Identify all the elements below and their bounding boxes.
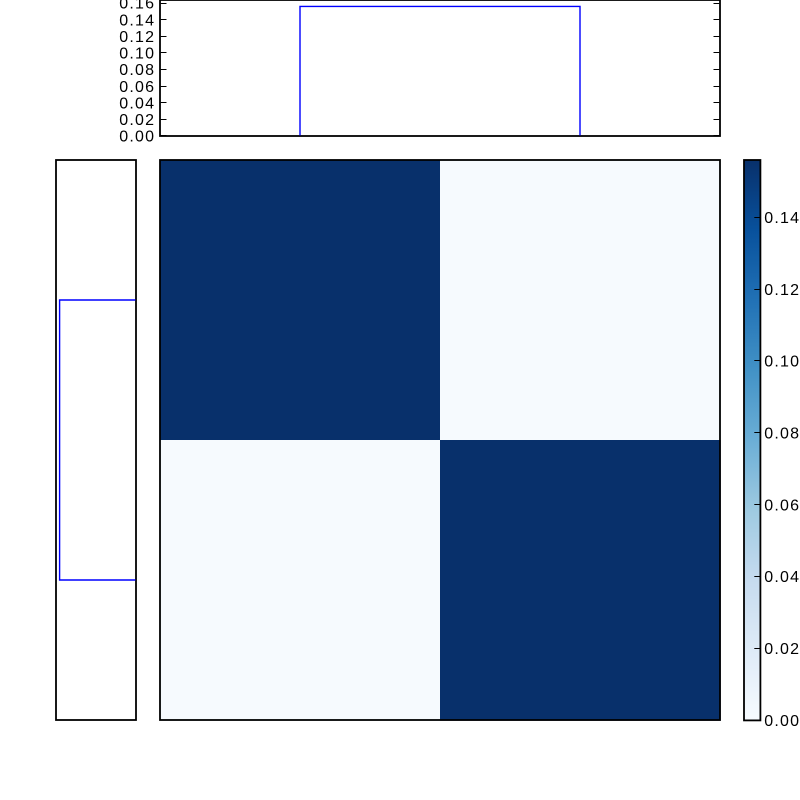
svg-text:0.10: 0.10 [764,354,800,371]
svg-text:0.16: 0.16 [119,0,155,13]
svg-text:0.04: 0.04 [764,569,800,586]
svg-text:0.08: 0.08 [119,62,155,79]
svg-text:0.02: 0.02 [119,112,155,129]
svg-text:0.00: 0.00 [764,713,800,730]
svg-text:0.14: 0.14 [119,12,155,29]
svg-text:0.08: 0.08 [764,426,800,443]
svg-text:0.04: 0.04 [119,95,155,112]
svg-text:0.12: 0.12 [764,282,800,299]
svg-text:0.06: 0.06 [119,79,155,96]
svg-text:0.14: 0.14 [764,210,800,227]
svg-text:0.02: 0.02 [764,641,800,658]
svg-text:0.12: 0.12 [119,29,155,46]
svg-text:0.00: 0.00 [119,129,155,146]
svg-text:0.10: 0.10 [119,46,155,63]
svg-text:0.06: 0.06 [764,497,800,514]
